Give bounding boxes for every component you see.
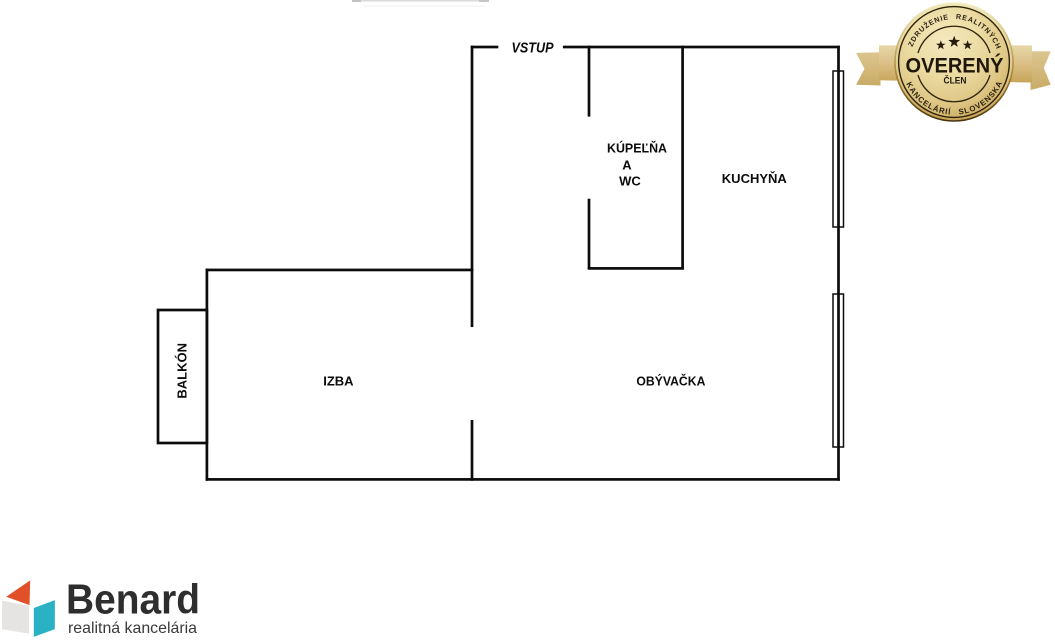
svg-text:WC: WC [619, 174, 641, 189]
svg-text:OVERENÝ: OVERENÝ [906, 54, 1004, 78]
svg-text:realitná kancelária: realitná kancelária [68, 620, 197, 637]
svg-text:KUCHYŇA: KUCHYŇA [722, 171, 788, 186]
svg-text:KÚPEĽŇA: KÚPEĽŇA [607, 141, 668, 156]
svg-text:VSTUP: VSTUP [512, 40, 555, 57]
svg-text:IZBA: IZBA [323, 374, 354, 389]
svg-text:Benard: Benard [66, 576, 200, 623]
svg-text:ČLEN: ČLEN [944, 75, 967, 87]
svg-text:OBÝVAČKA: OBÝVAČKA [636, 374, 706, 389]
svg-text:A: A [622, 158, 632, 173]
svg-text:BALKÓN: BALKÓN [175, 343, 190, 399]
